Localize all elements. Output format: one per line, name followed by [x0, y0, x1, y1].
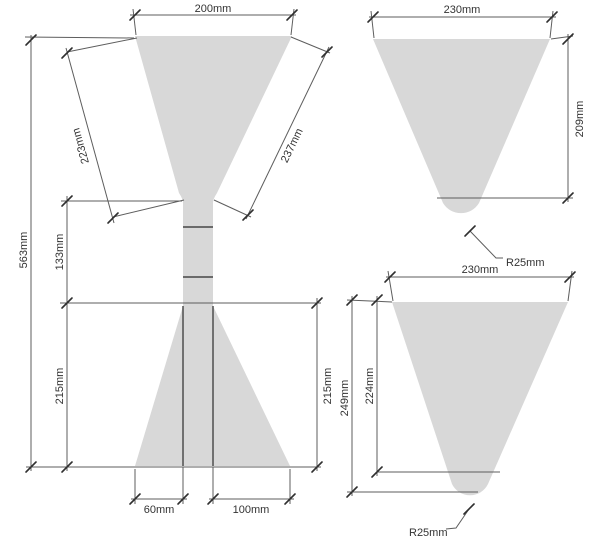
ext-line: [113, 200, 184, 217]
dim-label-right-slant: 237mm: [279, 127, 306, 165]
ext-line: [371, 11, 374, 38]
dim-label-inner-height: 224mm: [364, 368, 376, 405]
dim-tick: [62, 48, 72, 58]
leader-arrow-tick: [464, 504, 474, 514]
dim-tick: [243, 210, 253, 220]
dim-label-neck-height: 133mm: [54, 234, 66, 271]
ext-line: [25, 37, 134, 38]
dim-label-height: 209mm: [574, 101, 586, 138]
dim-label-bottom-right-width: 100mm: [233, 504, 270, 516]
dim-tick: [322, 47, 332, 57]
dim-label-lower-left-height: 215mm: [54, 368, 66, 405]
dim-label-tip-radius: R25mm: [506, 257, 545, 269]
bottom-right-figure-body: [392, 302, 568, 495]
ext-line: [550, 11, 553, 38]
dim-label-bottom-left-width: 60mm: [144, 504, 175, 516]
dim-tick: [108, 213, 118, 223]
ext-line: [291, 37, 330, 53]
dim-label-top-width: 230mm: [462, 264, 499, 276]
dim-label-lower-right-height: 215mm: [322, 368, 334, 405]
dim-label-tip-radius: R25mm: [409, 527, 448, 539]
dim-label-outer-height: 249mm: [339, 380, 351, 417]
left-figure: 200mm 563mm 133mm 215mm 215mm 223mm 237m…: [18, 3, 334, 516]
ext-line: [67, 38, 137, 52]
ext-line: [133, 9, 136, 35]
dim-label-top-width: 200mm: [195, 3, 232, 15]
ext-line: [214, 200, 251, 217]
dim-label-total-height: 563mm: [18, 232, 30, 269]
ext-line: [347, 300, 392, 302]
top-right-figure: 230mm 209mm R25mm: [368, 4, 586, 269]
leader-line-r25: [470, 231, 503, 258]
drawing-canvas: 200mm 563mm 133mm 215mm 215mm 223mm 237m…: [0, 0, 600, 542]
top-right-figure-body: [373, 39, 550, 213]
technical-drawing: 200mm 563mm 133mm 215mm 215mm 223mm 237m…: [0, 0, 600, 542]
dim-label-top-width: 230mm: [444, 4, 481, 16]
bottom-right-figure: 230mm 249mm 224mm R25mm: [339, 264, 575, 539]
